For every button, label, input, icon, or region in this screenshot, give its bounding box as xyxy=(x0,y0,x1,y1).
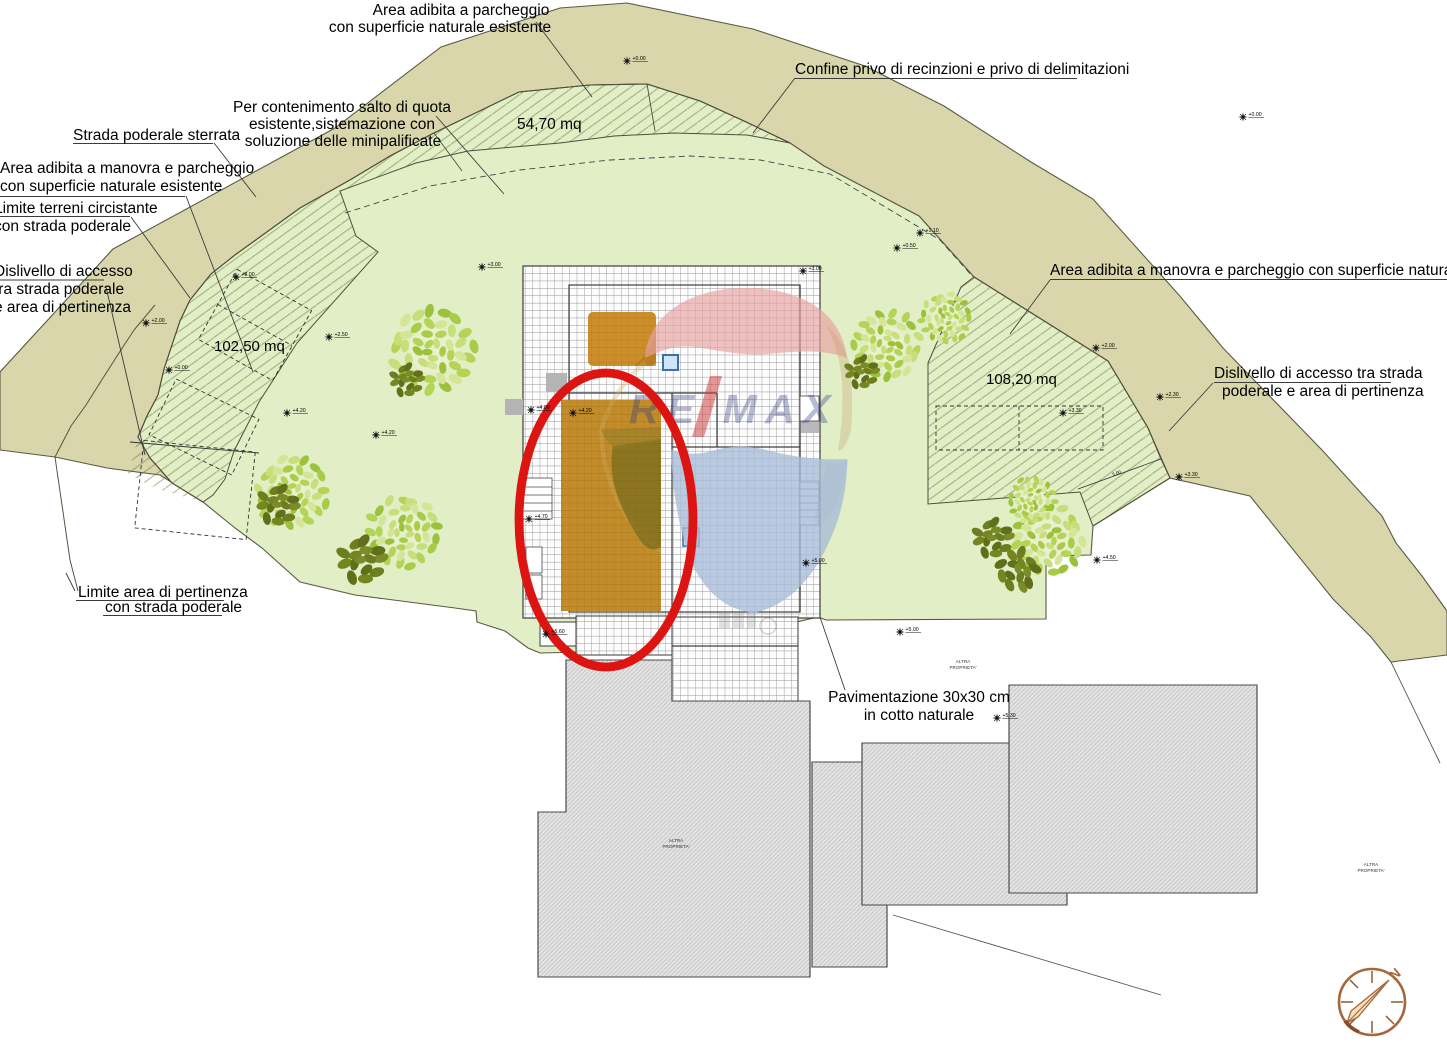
svg-text:+3.30: +3.30 xyxy=(1185,472,1198,478)
svg-text:+2.00: +2.00 xyxy=(152,318,165,324)
svg-text:ALTRA: ALTRA xyxy=(956,659,971,664)
svg-text:Limite terreni circistante: Limite terreni circistante xyxy=(0,200,158,217)
svg-text:+4.70: +4.70 xyxy=(535,514,548,520)
svg-text:Dislivello di accesso: Dislivello di accesso xyxy=(0,263,133,280)
svg-text:in cotto naturale: in cotto naturale xyxy=(864,707,974,724)
svg-text:+0.50: +0.50 xyxy=(903,243,916,249)
svg-text:poderale e area di pertinenza: poderale e area di pertinenza xyxy=(1222,383,1424,400)
svg-text:Pavimentazione 30x30 cm: Pavimentazione 30x30 cm xyxy=(828,689,1010,706)
svg-text:+2.30: +2.30 xyxy=(1166,392,1179,398)
svg-text:esistente,sistemazione con: esistente,sistemazione con xyxy=(249,116,435,133)
svg-text:Strada poderale sterrata: Strada poderale sterrata xyxy=(73,127,241,144)
svg-text:+5.30: +5.30 xyxy=(1003,713,1016,719)
svg-text:con strada poderale: con strada poderale xyxy=(0,218,131,235)
svg-text:108,20 mq: 108,20 mq xyxy=(986,371,1057,388)
svg-text:ALTRA: ALTRA xyxy=(669,838,684,843)
svg-text:Dislivello di accesso tra stra: Dislivello di accesso tra strada xyxy=(1214,365,1423,382)
svg-text:+4.00: +4.00 xyxy=(537,405,550,411)
svg-text:Confine privo di recinzioni e: Confine privo di recinzioni e privo di d… xyxy=(795,61,1129,78)
svg-text:+2.00: +2.00 xyxy=(1102,343,1115,349)
svg-text:102,50 mq: 102,50 mq xyxy=(214,338,285,355)
svg-text:PROPRIETA': PROPRIETA' xyxy=(662,844,689,849)
svg-text:+2.00: +2.00 xyxy=(242,272,255,278)
svg-text:ALTRA: ALTRA xyxy=(1364,862,1379,867)
svg-text:+0.00: +0.00 xyxy=(633,56,646,62)
svg-text:tra strada poderale: tra strada poderale xyxy=(0,281,124,298)
svg-text:+4.20: +4.20 xyxy=(382,430,395,436)
svg-text:+0.00: +0.00 xyxy=(1249,112,1262,118)
svg-text:e area di pertinenza: e area di pertinenza xyxy=(0,299,131,316)
svg-text:Area adibita a parcheggio: Area adibita a parcheggio xyxy=(373,2,550,19)
svg-text:soluzione delle minipalificate: soluzione delle minipalificate xyxy=(245,133,441,150)
svg-text:+4.50: +4.50 xyxy=(1103,555,1116,561)
svg-text:con strada poderale: con strada poderale xyxy=(105,599,242,616)
svg-text:54,70 mq: 54,70 mq xyxy=(517,116,582,133)
svg-text:+2.50: +2.50 xyxy=(335,332,348,338)
svg-text:+5.00: +5.00 xyxy=(812,558,825,564)
svg-text:+3.00: +3.00 xyxy=(809,266,822,272)
svg-text:Area adibita a manovra e parch: Area adibita a manovra e parcheggio xyxy=(0,160,254,177)
svg-text:+3.30: +3.30 xyxy=(1069,408,1082,414)
svg-text:+4.20: +4.20 xyxy=(579,408,592,414)
svg-text:+5.00: +5.00 xyxy=(906,627,919,633)
svg-text:con superficie naturale esiste: con superficie naturale esistente xyxy=(0,178,222,195)
svg-text:+3.00: +3.00 xyxy=(488,262,501,268)
svg-text:+5.60: +5.60 xyxy=(552,629,565,635)
svg-text:Per contenimento salto di quot: Per contenimento salto di quota xyxy=(233,99,451,116)
svg-text:+1.10: +1.10 xyxy=(926,228,939,234)
svg-text:Area adibita a manovra e parch: Area adibita a manovra e parcheggio con … xyxy=(1050,262,1447,279)
svg-text:+4.20: +4.20 xyxy=(293,408,306,414)
svg-text:PROPRIETA': PROPRIETA' xyxy=(1357,868,1384,873)
svg-text:con superficie naturale esiste: con superficie naturale esistente xyxy=(329,19,551,36)
svg-text:+0.00: +0.00 xyxy=(175,365,188,371)
svg-text:PROPRIETA': PROPRIETA' xyxy=(949,665,976,670)
